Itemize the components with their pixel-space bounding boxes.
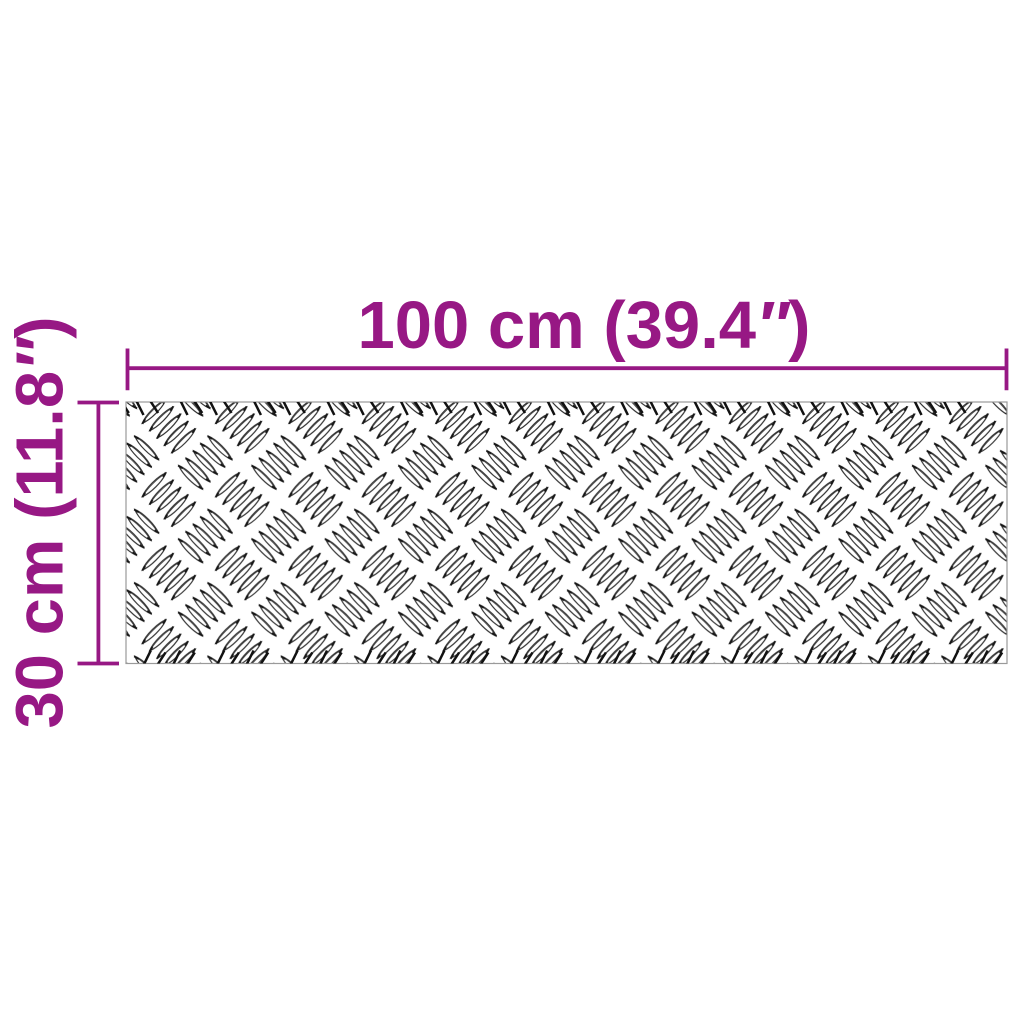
svg-text:30 cm (11.8″): 30 cm (11.8″) xyxy=(3,316,78,728)
svg-text:100 cm (39.4″): 100 cm (39.4″) xyxy=(358,288,811,363)
